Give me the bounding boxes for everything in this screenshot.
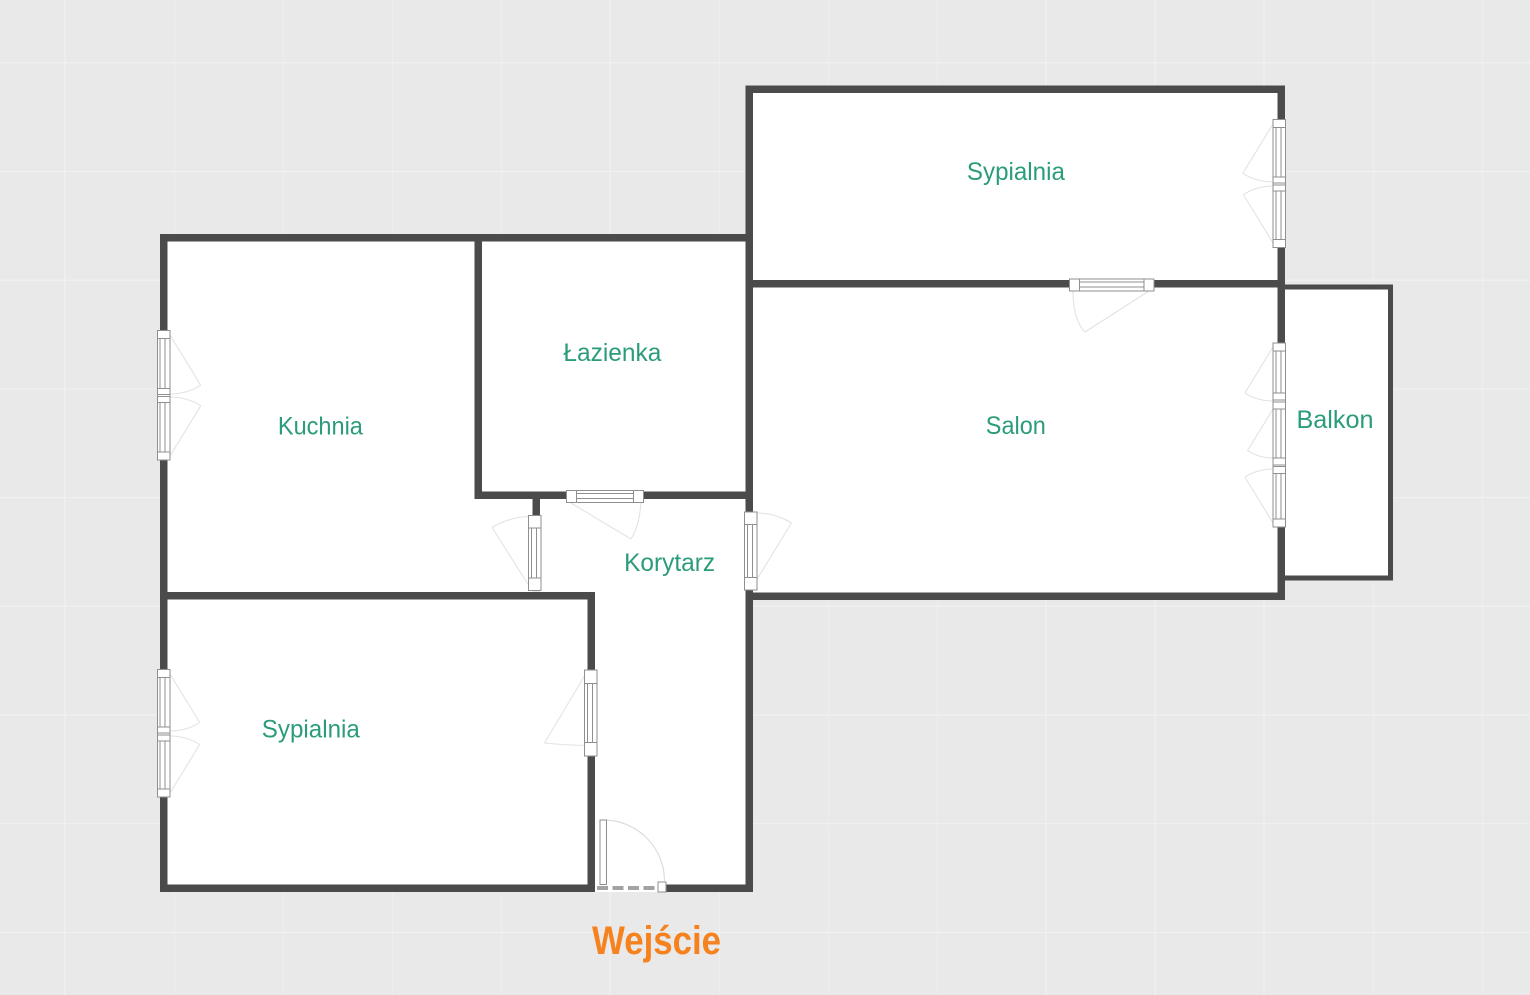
svg-text:Łazienka: Łazienka — [563, 339, 661, 367]
svg-text:Sypialnia: Sypialnia — [967, 158, 1065, 186]
svg-text:Sypialnia: Sypialnia — [262, 716, 360, 744]
svg-text:Salon: Salon — [986, 412, 1046, 440]
svg-text:Wejście: Wejście — [592, 919, 721, 963]
svg-text:Balkon: Balkon — [1297, 406, 1374, 434]
svg-text:Korytarz: Korytarz — [624, 549, 715, 577]
svg-text:Kuchnia: Kuchnia — [278, 413, 363, 441]
